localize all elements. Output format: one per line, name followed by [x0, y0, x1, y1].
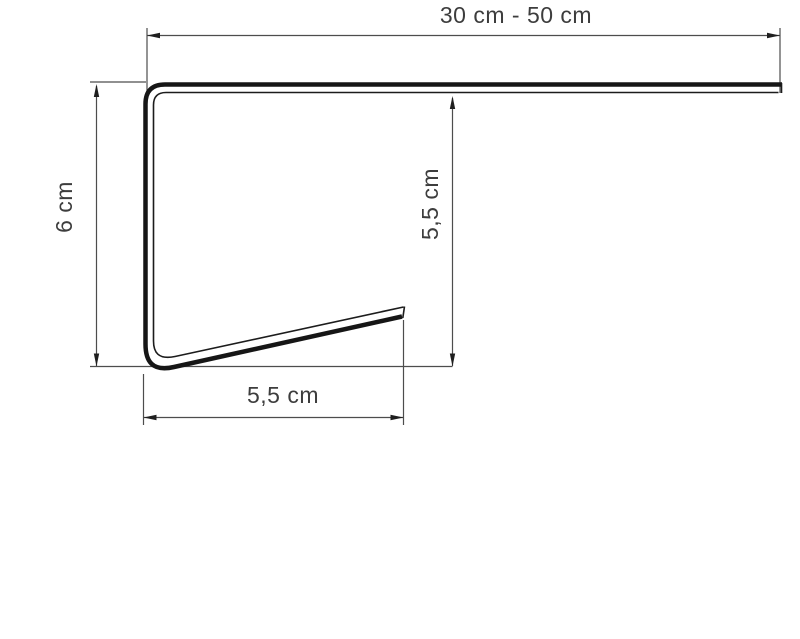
arrowhead-down-icon [450, 354, 455, 367]
profile-outline [146, 83, 783, 368]
bottom-depth-label: 5,5 cm [247, 382, 319, 408]
arrowhead-up-icon [450, 96, 455, 109]
dimension-left-height: 6 cm [51, 82, 452, 367]
arrowhead-right-icon [391, 415, 404, 421]
arrowhead-right-icon [767, 33, 780, 39]
profile-lip-end-cap [403, 307, 405, 319]
arrowhead-left-icon [144, 415, 157, 421]
profile-outer-edge [146, 85, 783, 369]
arrowhead-up-icon [94, 84, 99, 97]
left-height-label: 6 cm [51, 181, 77, 233]
arrowhead-left-icon [147, 33, 160, 39]
diagram-canvas: 30 cm - 50 cm 6 cm 5,5 cm 5,5 cm [0, 0, 800, 639]
top-width-label: 30 cm - 50 cm [440, 2, 592, 28]
dimension-inner-height: 5,5 cm [417, 96, 455, 367]
profile-dimension-drawing: 30 cm - 50 cm 6 cm 5,5 cm 5,5 cm [0, 0, 800, 639]
inner-height-label: 5,5 cm [417, 168, 443, 240]
arrowhead-down-icon [94, 354, 99, 367]
profile-inner-edge [154, 93, 779, 358]
